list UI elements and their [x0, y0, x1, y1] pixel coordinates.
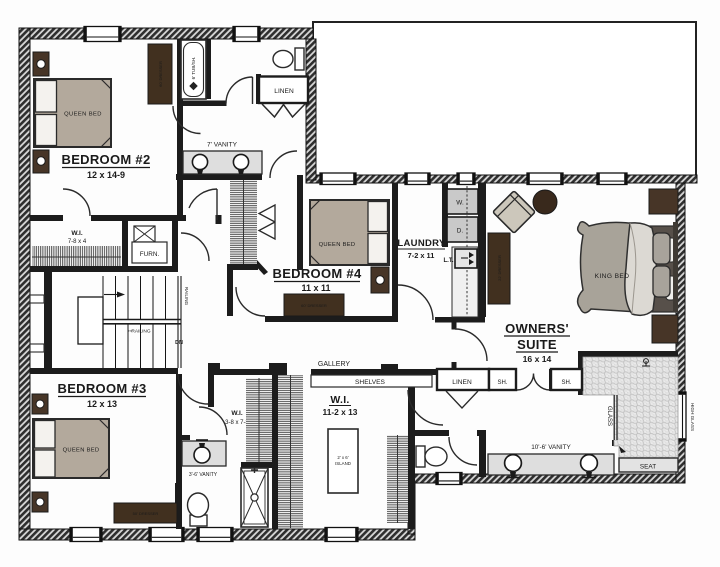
svg-text:12 x 14-9: 12 x 14-9	[87, 170, 125, 180]
svg-text:SEAT: SEAT	[640, 464, 656, 471]
svg-text:DN: DN	[175, 340, 183, 346]
svg-text:6' TUB/SH.: 6' TUB/SH.	[191, 57, 196, 80]
svg-text:D.: D.	[457, 228, 464, 235]
svg-text:SUITE: SUITE	[517, 337, 557, 352]
svg-text:3-8 x 7-8: 3-8 x 7-8	[225, 420, 249, 426]
svg-text:W.I.: W.I.	[330, 394, 349, 406]
svg-text:12 x 13: 12 x 13	[87, 399, 117, 409]
svg-text:10'-6' VANITY: 10'-6' VANITY	[531, 444, 571, 451]
svg-text:FURN.: FURN.	[140, 251, 160, 258]
svg-text:RAILING: RAILING	[184, 287, 189, 306]
svg-text:SH.: SH.	[561, 380, 571, 386]
svg-text:7' VANITY: 7' VANITY	[207, 142, 238, 149]
svg-text:KING BED: KING BED	[595, 273, 630, 280]
svg-text:7-8 x 4: 7-8 x 4	[68, 239, 87, 245]
svg-text:QUEEN BED: QUEEN BED	[319, 242, 356, 248]
svg-text:BEDROOM #4: BEDROOM #4	[273, 266, 362, 281]
svg-text:LAUNDRY: LAUNDRY	[397, 238, 446, 249]
svg-text:LINEN: LINEN	[274, 88, 294, 95]
svg-text:11-2 x 13: 11-2 x 13	[323, 407, 358, 417]
svg-text:W.: W.	[456, 200, 464, 207]
svg-text:60' DRESSER: 60' DRESSER	[158, 61, 163, 87]
svg-text:LINEN: LINEN	[452, 379, 472, 386]
svg-text:W.I.: W.I.	[71, 230, 83, 237]
svg-text:QUEEN BED: QUEEN BED	[63, 448, 100, 454]
svg-text:7-2 x 11: 7-2 x 11	[408, 251, 435, 260]
svg-text:16 x 14: 16 x 14	[523, 354, 552, 364]
svg-text:OWNERS': OWNERS'	[505, 321, 569, 336]
svg-text:SHELVES: SHELVES	[355, 379, 386, 386]
svg-text:3'-6' VANITY: 3'-6' VANITY	[189, 472, 218, 478]
svg-text:SH.: SH.	[497, 380, 507, 386]
svg-text:11 x 11: 11 x 11	[301, 283, 330, 293]
svg-text:2' x 6': 2' x 6'	[337, 455, 348, 460]
svg-text:↤RAILING: ↤RAILING	[127, 329, 150, 335]
svg-text:60' DRESSER: 60' DRESSER	[301, 303, 327, 308]
svg-text:QUEEN BED: QUEEN BED	[64, 112, 102, 118]
svg-text:BEDROOM #2: BEDROOM #2	[62, 152, 151, 167]
svg-text:BEDROOM #3: BEDROOM #3	[58, 381, 147, 396]
svg-text:22' DRESSER: 22' DRESSER	[497, 255, 502, 281]
svg-text:GALLERY: GALLERY	[318, 361, 350, 368]
svg-text:ISLAND: ISLAND	[335, 461, 351, 466]
svg-text:GLASS: GLASS	[606, 406, 612, 426]
svg-text:HIGH GLASS: HIGH GLASS	[690, 403, 695, 431]
svg-text:50' DRESSER: 50' DRESSER	[133, 511, 159, 516]
svg-text:L.T.: L.T.	[444, 258, 454, 264]
svg-text:W.I.: W.I.	[231, 410, 243, 417]
